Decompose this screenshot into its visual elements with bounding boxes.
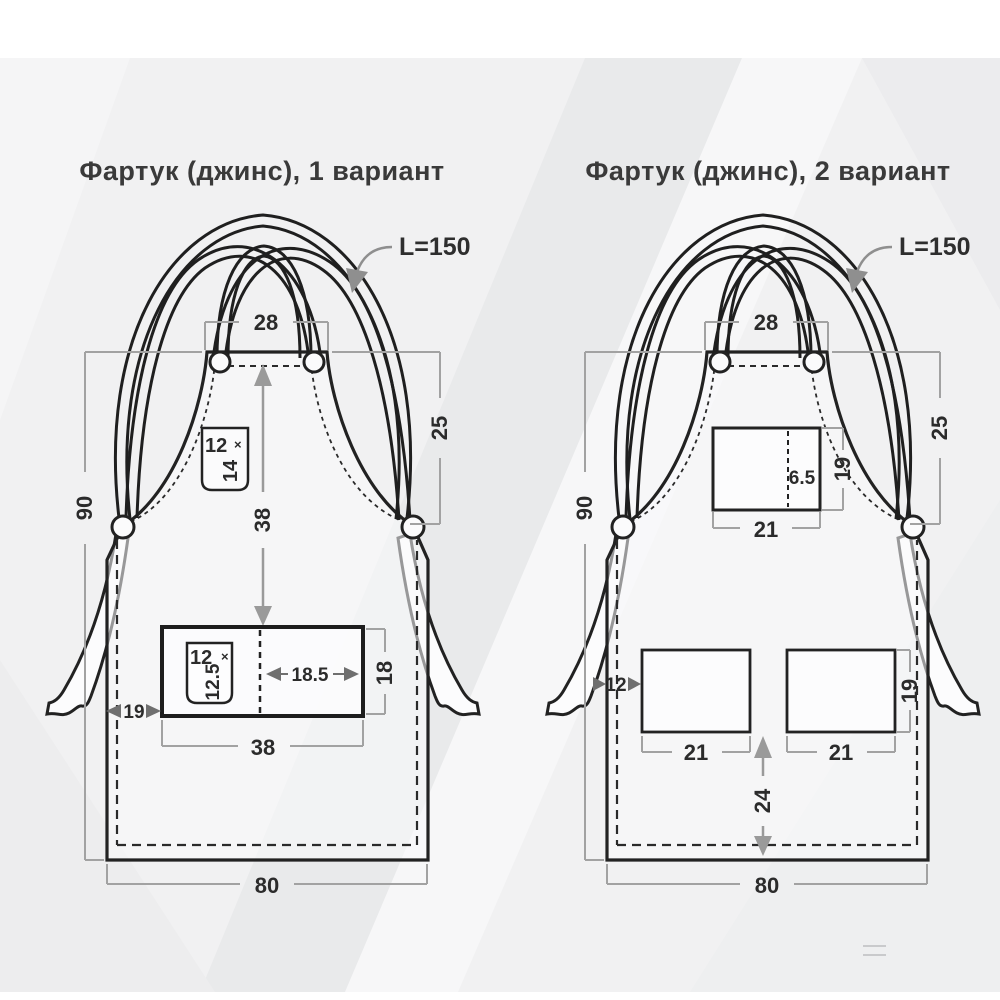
variant2-dim-bib-drop: 25 <box>927 416 952 440</box>
variant1-strap-length-label: L=150 <box>399 233 471 261</box>
variant1-dim-top-width: 28 <box>254 310 278 335</box>
variant2-dim-bottom-width: 80 <box>755 873 779 898</box>
variant2-dim-offset-label: 12 <box>605 675 626 696</box>
variant2-dim-to-bottom: 24 <box>750 788 775 813</box>
variant1-dim-pocket-width: 38 <box>251 735 275 760</box>
variant2-dim-left-pocket-width: 21 <box>684 740 708 765</box>
variant2-strap-length-label: L=150 <box>899 233 971 261</box>
diagram-canvas: Фартук (джинс), 1 вариант L=150 28 90 25… <box>0 0 1000 1000</box>
variant1-dim-offset-label: 19 <box>123 702 144 723</box>
variant1-dim-height: 90 <box>72 496 97 520</box>
left-pocket-outline <box>642 650 750 732</box>
variant1-dim-bib-drop: 25 <box>427 416 452 440</box>
variant1-dim-center-to-edge: 18.5 <box>292 665 329 686</box>
chest-pocket-times: × <box>234 437 242 452</box>
variant1-dim-pocket-height: 18 <box>372 661 397 685</box>
variant2-dim-right-pocket-width: 21 <box>829 740 853 765</box>
right-pocket-outline <box>787 650 895 732</box>
variant2-title: Фартук (джинс), 2 вариант <box>585 156 950 186</box>
chest-pocket-width: 12 <box>205 435 227 457</box>
variant2-dim-divider: 6.5 <box>789 468 816 489</box>
pen-pocket-height: 12.5 <box>203 663 224 700</box>
pen-pocket-times: × <box>221 649 229 664</box>
variant2-dim-chest-height: 19 <box>830 457 855 481</box>
variant1-title: Фартук (джинс), 1 вариант <box>79 156 444 186</box>
variant1-dim-38-label: 38 <box>250 508 275 532</box>
chest-pocket-height: 14 <box>220 459 242 482</box>
variant1-dim-bottom-width: 80 <box>255 873 279 898</box>
variant2-dim-height: 90 <box>572 496 597 520</box>
apron-pattern-sheet: Фартук (джинс), 1 вариант L=150 28 90 25… <box>0 0 1000 1000</box>
variant2-dim-chest-width: 21 <box>754 517 778 542</box>
variant2-dim-top-width: 28 <box>754 310 778 335</box>
variant1-chest-pocket: 12 × 14 <box>202 428 248 490</box>
variant2-dim-pocket-height: 19 <box>897 679 922 703</box>
